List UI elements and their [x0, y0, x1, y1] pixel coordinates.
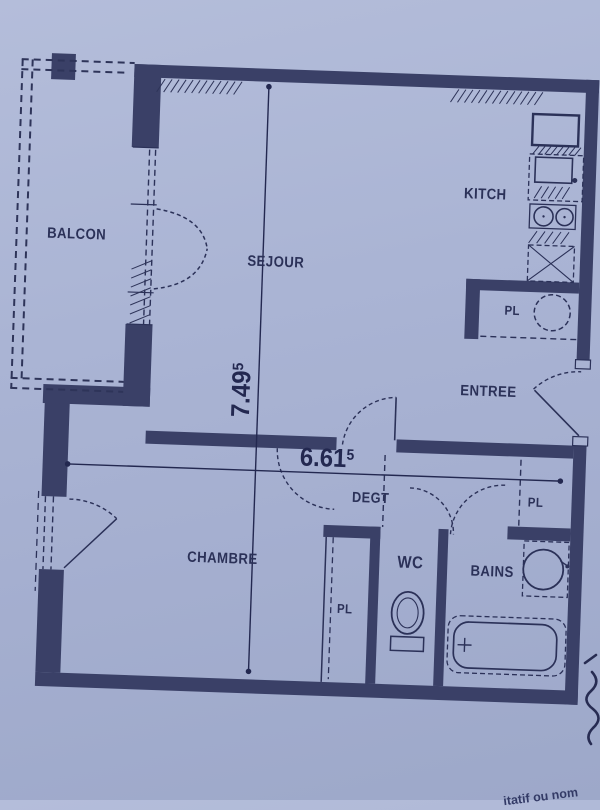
dimension-vertical-sup: 5 — [230, 362, 247, 370]
room-label-kitchen: KITCH — [464, 185, 507, 203]
scanned-floorplan-photo: { "palette": { "paper_light": "#b4bdda",… — [0, 0, 600, 800]
wall-wc-west — [365, 527, 380, 684]
floorplan: BALCON SEJOUR KITCH PL ENTREE DEGT PL CH… — [0, 0, 600, 810]
room-label-wc: WC — [397, 553, 423, 574]
wall-sejour-west-upper — [132, 64, 162, 148]
wall-sejour-west-lower — [123, 324, 153, 407]
wall-wc-east — [433, 529, 448, 686]
dimension-vertical: 7.495 — [225, 362, 258, 417]
tap-icon — [572, 178, 577, 183]
dimension-vertical-value: 7.49 — [225, 370, 257, 418]
kitchen-counter — [525, 114, 585, 283]
sink-basin-icon — [535, 157, 573, 183]
sejour-door-leaf — [395, 397, 397, 440]
room-label-entree: ENTREE — [460, 382, 517, 401]
floorplan-drawing — [0, 0, 600, 810]
balcony-pillar — [51, 53, 76, 80]
wall-bottom — [35, 672, 578, 705]
bathtub-icon — [453, 622, 558, 672]
wall-top — [134, 64, 599, 93]
bathtub-tap-icon — [457, 638, 471, 652]
room-label-sejour: SEJOUR — [247, 253, 304, 272]
wall-closet-kitchen-top — [466, 279, 579, 294]
entrance-door-arc — [534, 370, 582, 391]
room-label-bains: BAINS — [470, 563, 514, 581]
wall-interior-right — [396, 439, 573, 458]
dimension-horizontal: 6.615 — [299, 442, 354, 475]
closet-label-entree: PL — [528, 495, 544, 511]
wall-hatch-top — [130, 78, 543, 337]
fridge-icon — [532, 114, 579, 147]
water-heater-icon — [534, 294, 571, 331]
wall-west-lower — [35, 569, 64, 673]
closet-fronts — [321, 331, 577, 690]
dimension-horizontal-value: 6.61 — [299, 442, 347, 474]
closet-label-bedroom: PL — [337, 601, 353, 617]
sink-drainer — [534, 186, 569, 199]
closet-label-kitchen: PL — [504, 303, 520, 319]
wall-west-upper — [41, 396, 69, 497]
room-label-degt: DEGT — [352, 490, 390, 507]
bathroom-fixtures — [447, 538, 571, 676]
wall-closet-entree-bottom — [507, 526, 570, 541]
wc-door-arc — [408, 488, 455, 535]
bathroom-door-arc — [450, 483, 505, 538]
wall-closet-kitchen-west — [464, 279, 480, 339]
sejour-door-arc — [342, 396, 396, 447]
toilet-icon — [390, 591, 425, 651]
washbasin-icon — [523, 549, 564, 590]
room-label-balcon: BALCON — [47, 225, 107, 244]
entrance-door-leaf — [533, 390, 581, 436]
dimension-horizontal-sup: 5 — [346, 447, 354, 464]
balcony-french-window — [127, 147, 211, 327]
room-label-chambre: CHAMBRE — [187, 549, 258, 568]
exterior-walls — [30, 53, 600, 705]
